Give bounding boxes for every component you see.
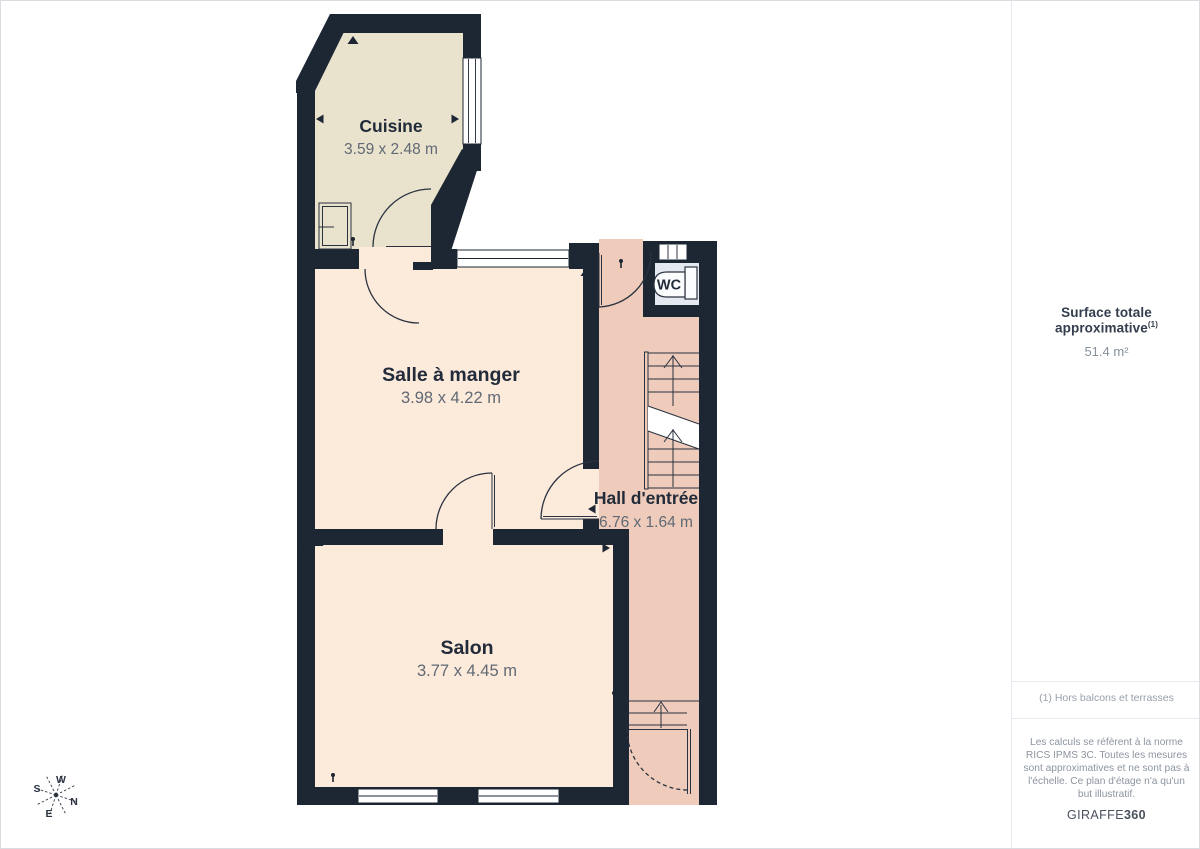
toilet-tank xyxy=(685,267,697,299)
brand-logo: GIRAFFE360 xyxy=(1012,808,1200,822)
room-label-salon: Salon xyxy=(440,637,493,659)
window-salon-right xyxy=(478,789,559,803)
brand-name: GIRAFFE xyxy=(1067,808,1124,822)
room-label-wc: WC xyxy=(657,278,682,294)
room-hall-floor-lower xyxy=(629,531,699,805)
floorplan-page: WC xyxy=(0,0,1200,849)
room-dims-cuisine: 3.59 x 2.48 m xyxy=(344,141,438,158)
compass-w: W xyxy=(56,774,66,786)
wc-room: WC xyxy=(654,263,699,305)
total-area-label: Surface totale approximative xyxy=(1055,305,1152,336)
sidebar-divider-top xyxy=(1012,681,1200,682)
window-wc xyxy=(659,244,687,260)
total-area-block: Surface totale approximative(1) 51.4 m² xyxy=(1012,305,1200,359)
total-area-value: 51.4 m² xyxy=(1012,344,1200,359)
disclaimer-text: Les calculs se réfèrent à la norme RICS … xyxy=(1020,736,1193,801)
area-footnote: (1) Hors balcons et terrasses xyxy=(1012,692,1200,704)
compass-e: E xyxy=(45,808,52,820)
room-dims-salon: 3.77 x 4.45 m xyxy=(417,662,517,680)
compass-icon: W S N E xyxy=(33,774,77,820)
room-label-salle-a-manger: Salle à manger xyxy=(382,364,520,386)
compass-s: S xyxy=(33,783,40,795)
compass-n: N xyxy=(70,796,78,808)
brand-suffix: 360 xyxy=(1124,808,1146,822)
sidebar-panel: Surface totale approximative(1) 51.4 m² … xyxy=(1011,1,1200,849)
doorway-salle-salon xyxy=(443,527,493,547)
sidebar-divider-bottom xyxy=(1012,718,1200,719)
room-dims-hall: 6.76 x 1.64 m xyxy=(599,514,693,531)
total-area-title: Surface totale approximative(1) xyxy=(1012,305,1200,336)
footnote-marker: (1) xyxy=(1148,320,1158,329)
window-salle-a-manger xyxy=(457,250,569,267)
room-label-hall: Hall d'entrée xyxy=(594,488,699,508)
window-salon-left xyxy=(358,789,438,803)
room-label-cuisine: Cuisine xyxy=(359,116,422,136)
window-cuisine xyxy=(463,58,481,144)
room-dims-salle-a-manger: 3.98 x 4.22 m xyxy=(401,389,501,407)
